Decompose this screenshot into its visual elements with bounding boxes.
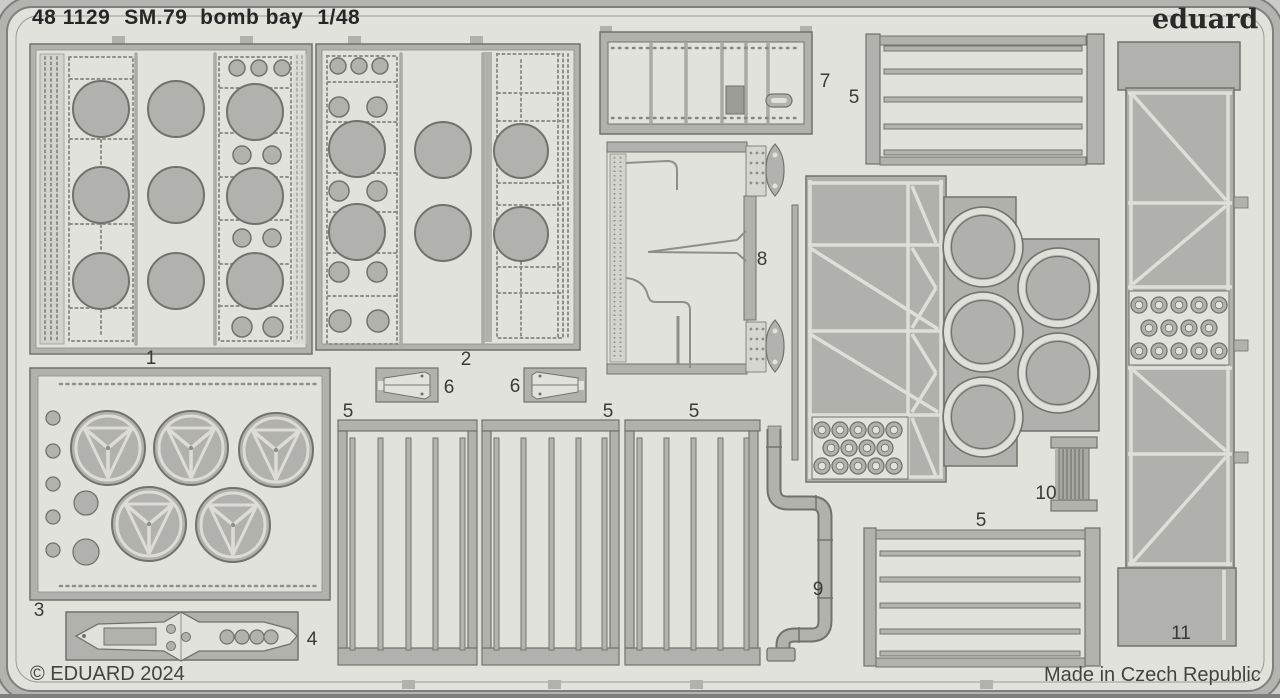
fret-sheet-graphic	[0, 0, 1280, 698]
part-label-6-left: 6	[444, 377, 455, 399]
copyright-text: © EDUARD 2024	[30, 663, 185, 686]
part-label-1: 1	[146, 348, 157, 370]
part-1-door-panel	[30, 44, 312, 354]
part-4-rack-strip	[66, 612, 298, 661]
part-label-11: 11	[1171, 623, 1191, 645]
part-label-5-a: 5	[343, 401, 354, 423]
part-label-7: 7	[820, 71, 831, 93]
hinge-bottom	[746, 320, 784, 372]
part-2-door-panel	[316, 44, 580, 350]
part-label-2: 2	[461, 349, 472, 371]
part-label-10: 10	[1035, 483, 1056, 505]
part-label-8: 8	[757, 249, 768, 271]
part-label-6-right: 6	[510, 376, 521, 398]
part-label-5-b: 5	[603, 401, 614, 423]
photo-etch-fret-sheet: 48 1129 SM.79 bomb bay 1/48 eduard © EDU…	[0, 0, 1280, 698]
eduard-logo: eduard	[1152, 4, 1258, 35]
part-6-piece-left	[376, 368, 438, 402]
part-label-5-top-right: 5	[849, 87, 860, 109]
part-label-4: 4	[307, 629, 318, 651]
part-label-5-bottom-right: 5	[976, 510, 987, 532]
part-label-3: 3	[34, 600, 45, 622]
part-11-truss-column	[1118, 42, 1248, 646]
part-6-piece-right	[524, 368, 586, 402]
sheet-title: 48 1129 SM.79 bomb bay 1/48	[32, 6, 360, 30]
part-label-9: 9	[813, 579, 824, 601]
hinge-top	[746, 144, 784, 196]
scale: 1/48	[317, 6, 360, 30]
catalog-number: 48 1129	[32, 6, 110, 30]
part-3-wheel-panel	[30, 368, 330, 600]
part-label-5-c: 5	[689, 401, 700, 423]
product-name: SM.79 bomb bay	[124, 6, 303, 30]
made-in-text: Made in Czech Republic	[1044, 664, 1261, 687]
part-7-riveted-panel	[600, 26, 812, 134]
